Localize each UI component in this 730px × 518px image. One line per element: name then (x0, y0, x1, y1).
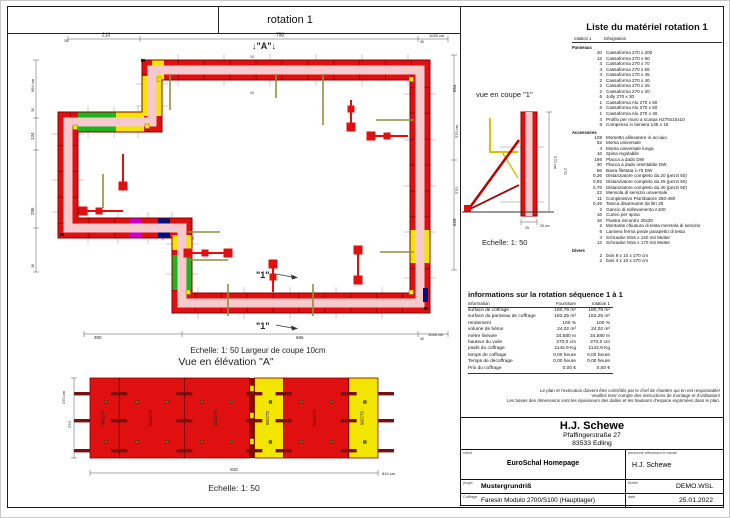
title-block-company-row: H.J. Schewe Pfaffingerstraße 27 83533 Ed… (461, 418, 723, 450)
file-label: fichier (628, 481, 638, 485)
elevation-panel-label: 200/270 (148, 409, 153, 426)
tie-hole (269, 401, 272, 404)
material-item-name: Compenso in lamiera 135 x 15 (606, 122, 722, 128)
elev-dim-height: 270 (67, 421, 72, 428)
coupe-dim-right-outer: 270 cm (553, 156, 558, 170)
dim-top-30: 30 (420, 40, 424, 44)
elevation-scale-note: Echelle: 1: 50 Largeur de coupe 10cm (190, 346, 326, 355)
title-block-project-row: projet Mustergrundriß fichier DEMO.WSL (461, 480, 723, 494)
tie-hole (330, 401, 333, 404)
tie-hole (300, 401, 303, 404)
rotation-info-title: informations sur la rotation séquence 1 … (468, 290, 720, 299)
section-scale: Echelle: 1: 50 (482, 238, 527, 247)
tie-hole (300, 441, 303, 444)
elevation-panel-label: 200/270 (213, 409, 218, 426)
material-col-qty: rotation 1 (572, 36, 604, 41)
special-panels (78, 70, 420, 290)
material-col-name: Désignation (604, 36, 626, 41)
corner-stop (423, 288, 428, 302)
info-col-fourniture: Fourniture (540, 301, 576, 306)
tie-hole (201, 401, 204, 404)
tie-hole (165, 441, 168, 444)
elevation-panel-label: 90/270 (359, 411, 364, 425)
tie-hole (363, 441, 366, 444)
joint-clamp (250, 413, 254, 419)
corner-flags (60, 59, 428, 310)
tie-grid-lines (52, 54, 436, 319)
project-value: Mustergrundriß (481, 483, 531, 490)
material-item-row: 12Schraube M16 x 170 mit Mutter (572, 240, 722, 246)
title-block: H.J. Schewe Pfaffingerstraße 27 83533 Ed… (460, 417, 724, 506)
coupe-dim-left-outer: 270 cm (454, 124, 459, 138)
material-item-qty: 12 (572, 240, 606, 246)
rotation-info: informations sur la rotation séquence 1 … (468, 290, 720, 374)
formwork-cell: Coffrage Faresin Modulo 2700/S100 (Haupt… (461, 494, 626, 507)
info-cell: 0,00 € (540, 366, 576, 372)
joint-clamp (250, 439, 254, 445)
dim-left-36: 36 (31, 264, 35, 268)
tie-hole (230, 441, 233, 444)
company-name: H.J. Schewe (461, 418, 723, 432)
elevation-panel-label: 90/270 (101, 411, 106, 425)
client-cell: client EuroSchal Homepage (461, 450, 626, 479)
date-cell: date 25.01.2022 (626, 494, 723, 507)
material-item-name: bois 4 x 10 x 270 cm (606, 258, 722, 264)
elevation-panel-label: 200/270 (312, 409, 317, 426)
tie-hole (135, 401, 138, 404)
material-item-row: 2bois 4 x 10 x 270 cm (572, 258, 722, 264)
wall-band (60, 59, 428, 310)
drawing-sheet: rotation 1 (0, 0, 730, 518)
dim-tie-10a: 10 (250, 55, 254, 59)
dim-left-30: 30 (31, 108, 35, 112)
joint-clamp (250, 386, 254, 392)
tie-hole (105, 401, 108, 404)
file-cell: fichier DEMO.WSL (626, 480, 723, 493)
material-list-body: Panneaux20Cassaforma 270 x 20012Cassafor… (572, 45, 722, 264)
section-wall (521, 112, 537, 216)
client-value: EuroSchal Homepage (461, 460, 625, 467)
elevation-panels: 90/270200/270200/27090/270200/27090/270 (74, 378, 394, 458)
dim-bottom-300: 300 (94, 335, 102, 340)
rotation-info-body: surface de coffrage180,79 m²180,79 m²sur… (468, 308, 613, 374)
dim-top-25: 25 (64, 39, 68, 43)
dim-bottom-665: 665 (296, 335, 304, 340)
section-marker-a: ↓"A"↓ (252, 41, 276, 51)
material-list-header: rotation 1 Désignation (572, 36, 722, 43)
worker-value: H.J. Schewe (632, 462, 671, 469)
disclaimer-line: Les bases des dimensions sont les épaiss… (462, 398, 720, 403)
svg-text:"1": "1" (256, 270, 270, 280)
elev-dim-width: 810 (230, 467, 238, 472)
coupe-dim-25: 25 (525, 226, 529, 230)
tie-hole (165, 401, 168, 404)
dim-wall-15b: 15 (191, 236, 195, 240)
elevation-panel-label: 90/270 (265, 411, 270, 425)
info-cell: Prix du coffrage (468, 366, 540, 372)
tie-hole (230, 401, 233, 404)
coupe-dim-left-inner: 270 (454, 187, 459, 194)
dim-left-134: 134 (30, 132, 35, 140)
tie-hole (363, 401, 366, 404)
material-item-name: Schraube M16 x 170 mit Mutter (606, 240, 722, 246)
client-label: client (463, 451, 472, 455)
formwork-label: Coffrage (463, 495, 478, 499)
material-item-row: 6Compenso in lamiera 135 x 15 (572, 122, 722, 128)
tie-hole (201, 441, 204, 444)
dim-top-total: 1045 cm (429, 33, 445, 38)
panel-clamp (378, 392, 394, 395)
rotation-title: rotation 1 (267, 14, 313, 26)
dim-tie-10b: 10 (250, 91, 254, 95)
material-item-qty: 2 (572, 258, 606, 264)
svg-text:"1": "1" (256, 321, 270, 331)
dim-bottom-total: 1045 cm (428, 332, 444, 337)
elevation-view: Echelle: 1: 50 Largeur de coupe 10cm Vue… (58, 342, 408, 514)
disclaimer-text: Le plan et l'exécution doivent être cont… (462, 388, 720, 404)
dim-top-750: 750 (276, 33, 285, 39)
section-marker-1-top: "1" (256, 270, 298, 280)
elevation-title: Vue en élévation "A" (178, 356, 273, 368)
tie-hole (330, 441, 333, 444)
date-value: 25.01.2022 (679, 497, 713, 504)
section-dim-labels: 270 cm 270 270 cm 270 25 25 cm (454, 124, 568, 230)
project-cell: projet Mustergrundriß (461, 480, 626, 493)
material-item-qty: 6 (572, 122, 606, 128)
panel-clamp (378, 419, 394, 422)
project-label: projet (463, 481, 473, 485)
panel-clamp (74, 392, 90, 395)
tie-hole (269, 441, 272, 444)
dim-left-total: 694 cm (30, 78, 35, 92)
dim-wall-15a: 15 (161, 236, 165, 240)
company-address1: Pfaffingerstraße 27 (461, 432, 723, 440)
info-row: Prix du coffrage0,00 €0,00 € (468, 366, 613, 372)
panel-clamp (74, 419, 90, 422)
panel-clamp (378, 449, 394, 452)
section-view: vue en coupe "1" 270 cm 270 270 cm (452, 86, 570, 254)
section-marker-1-bottom: "1" (256, 321, 298, 331)
coupe-dim-right-inner: 270 (563, 168, 568, 175)
panel-clamp (74, 449, 90, 452)
title-block-client-row: client EuroSchal Homepage personne effec… (461, 450, 723, 480)
material-list: Liste du matériel rotation 1 rotation 1 … (572, 22, 722, 290)
worker-cell: personne effectuant le travail H.J. Sche… (626, 450, 723, 479)
formwork-value: Faresin Modulo 2700/S100 (Hauptlager) (481, 497, 595, 504)
info-col-rotation: rotation 1 (576, 301, 610, 306)
info-col-information: information (468, 301, 540, 306)
company-address2: 83533 Edling (461, 440, 723, 448)
rotation-info-header: information Fourniture rotation 1 (468, 301, 613, 308)
section-braces (464, 140, 519, 212)
dimension-lines (33, 36, 457, 337)
title-block-formwork-row: Coffrage Faresin Modulo 2700/S100 (Haupt… (461, 494, 723, 507)
elev-dim-height-outer: 270 cm (61, 390, 66, 404)
tie-hole (105, 441, 108, 444)
coupe-dim-25cm: 25 cm (540, 224, 550, 228)
worker-label: personne effectuant le travail (628, 451, 677, 455)
dim-bottom-30: 30 (420, 337, 424, 341)
dim-left-295: 295 (30, 207, 35, 215)
date-label: date (628, 495, 635, 499)
elevation-scale: Echelle: 1: 50 (208, 483, 260, 493)
tie-hole (135, 441, 138, 444)
file-value: DEMO.WSL (676, 483, 713, 490)
dim-top-210: 210 (102, 33, 111, 39)
section-view-title: vue en coupe "1" (476, 90, 533, 99)
elev-dim-width-total: 810 cm (382, 471, 396, 476)
info-cell: 0,00 € (576, 366, 610, 372)
floor-plan: 25 210 750 30 1045 cm 694 cm 30 134 295 … (24, 30, 460, 346)
material-list-title: Liste du matériel rotation 1 (572, 22, 722, 33)
